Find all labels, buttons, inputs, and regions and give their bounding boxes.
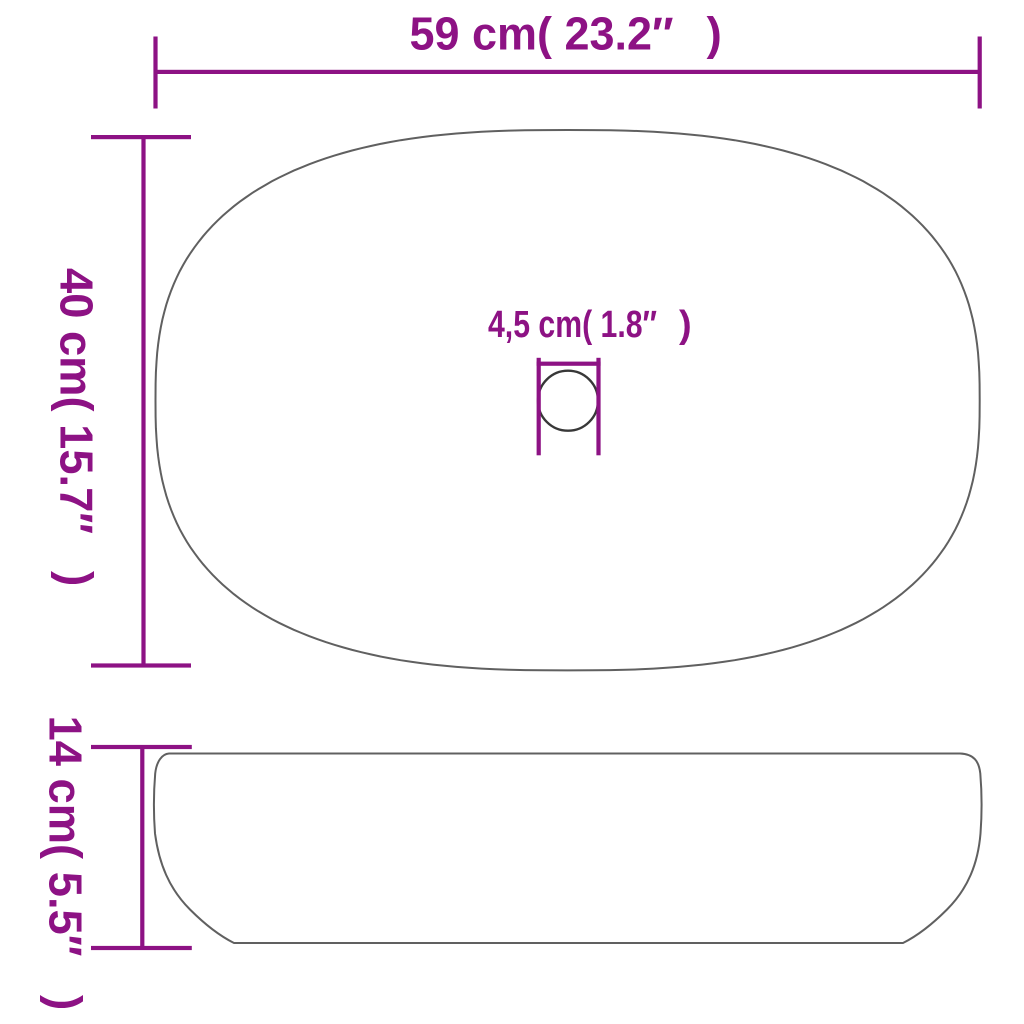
svg-text:40 cm( 15.7″: 40 cm( 15.7″	[51, 268, 103, 534]
svg-text:59 cm( 23.2″: 59 cm( 23.2″	[410, 8, 674, 60]
svg-text:): )	[707, 8, 722, 60]
svg-text:): )	[679, 304, 692, 346]
svg-text:4,5 cm( 1.8″: 4,5 cm( 1.8″	[488, 304, 657, 346]
svg-text:): )	[40, 995, 92, 1010]
svg-text:): )	[51, 571, 103, 586]
svg-text:14 cm( 5.5″: 14 cm( 5.5″	[40, 716, 92, 957]
